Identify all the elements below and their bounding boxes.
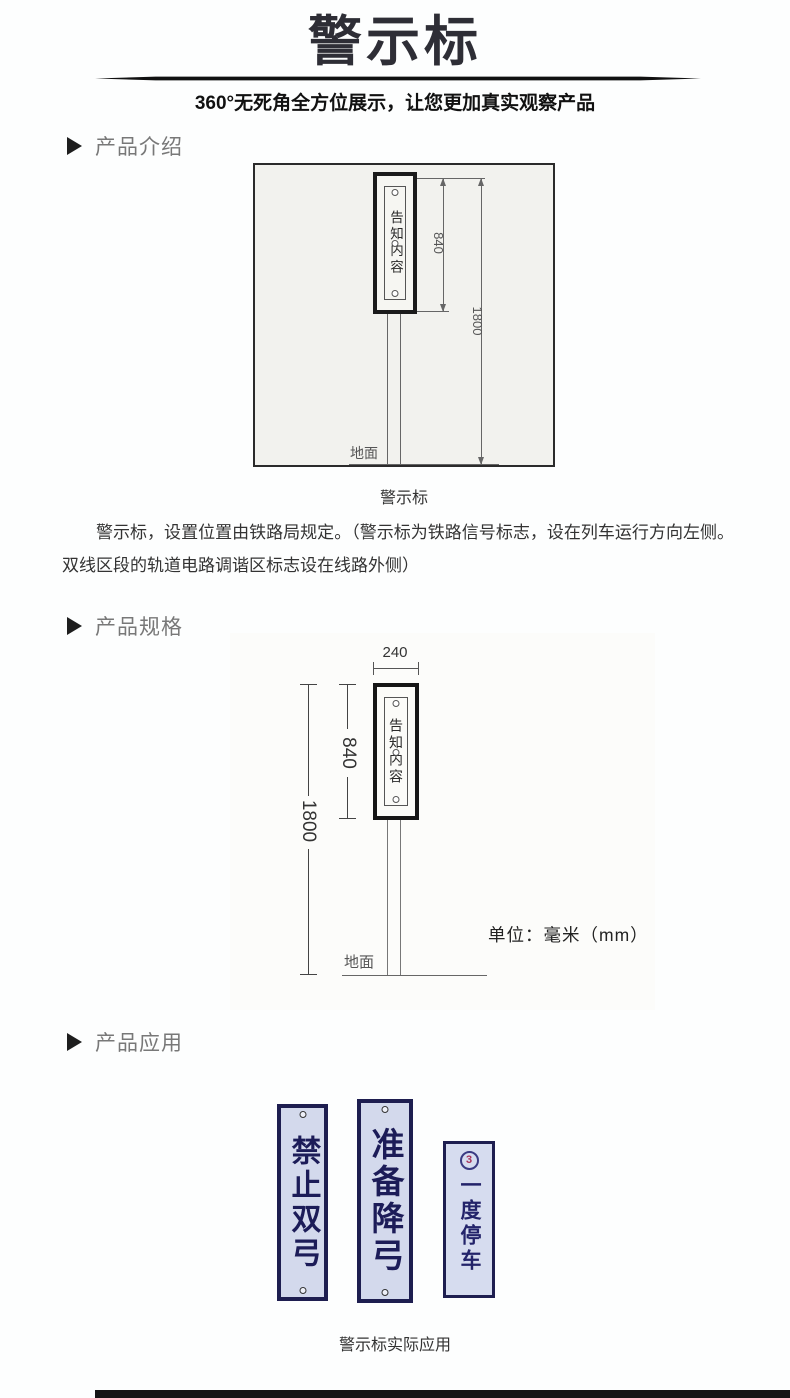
mount-hole	[393, 749, 400, 756]
dimension-label-1800: 1800	[469, 295, 485, 347]
ground-label: 地面	[350, 443, 378, 463]
diagram-caption: 警示标	[253, 484, 555, 508]
diagram-sign-plate: 告知内容	[373, 683, 419, 820]
triangle-icon	[67, 617, 82, 635]
intro-paragraph: 警示标，设置位置由铁路局规定。（警示标为铁路信号标志，设在列车运行方向左侧。双线…	[62, 516, 734, 582]
title-divider	[95, 76, 701, 81]
photo-sign-zhunbeijianggong: 准备降弓	[357, 1099, 413, 1303]
mount-hole	[299, 1111, 306, 1118]
arrow-down-icon	[478, 457, 484, 465]
diagram-pole	[387, 314, 401, 465]
photo-sign-text: 一度停车	[454, 1174, 484, 1274]
diagram-pole	[387, 820, 401, 975]
section-header-spec: 产品规格	[67, 611, 183, 641]
arrow-up-icon	[478, 178, 484, 186]
intro-diagram: 告知内容 地面 840 1800	[253, 163, 555, 467]
mount-hole	[392, 189, 399, 196]
arrow-up-icon	[440, 178, 446, 186]
photo-sign-jinzhishuanggong: 禁止双弓	[277, 1104, 328, 1301]
footer-bar	[95, 1390, 790, 1398]
circled-number-badge: 3	[460, 1151, 479, 1170]
dimension-tbar	[300, 974, 317, 975]
diagram-sign-inner-frame: 告知内容	[384, 697, 408, 806]
dimension-label-840: 840	[430, 220, 446, 266]
dimension-label-1800: 1800	[298, 795, 318, 847]
application-caption: 警示标实际应用	[0, 1331, 790, 1355]
page-subtitle: 360°无死角全方位展示，让您更加真实观察产品	[0, 88, 790, 115]
dimension-tbar	[339, 818, 356, 819]
mount-hole	[392, 290, 399, 297]
ground-line	[349, 464, 499, 465]
dimension-line-1800	[308, 684, 309, 796]
section-label: 产品应用	[95, 1027, 183, 1057]
mount-hole	[382, 1289, 389, 1296]
section-label: 产品介绍	[95, 131, 183, 161]
section-header-application: 产品应用	[67, 1027, 183, 1057]
section-label: 产品规格	[95, 611, 183, 641]
photo-sign-text: 准备降弓	[361, 1127, 409, 1275]
mount-hole	[393, 700, 400, 707]
triangle-icon	[67, 137, 82, 155]
dimension-line-840	[347, 684, 348, 729]
mount-hole	[382, 1106, 389, 1113]
mount-hole	[392, 240, 399, 247]
dimension-line-240	[373, 668, 419, 669]
photo-sign-yidutingche: 3 一度停车	[443, 1141, 495, 1298]
extension-line	[417, 178, 485, 179]
unit-note: 单位：毫米（mm）	[488, 922, 649, 947]
dimension-label-840: 840	[338, 729, 358, 777]
product-page: 警示标 360°无死角全方位展示，让您更加真实观察产品 产品介绍 告知内容 地面…	[0, 0, 790, 1398]
triangle-icon	[67, 1033, 82, 1051]
mount-hole	[393, 796, 400, 803]
section-header-intro: 产品介绍	[67, 131, 183, 161]
dimension-line-1800	[308, 849, 309, 974]
ground-line	[342, 975, 487, 976]
dimension-label-240: 240	[370, 644, 420, 661]
dimension-tick	[373, 662, 374, 675]
dimension-line-840	[347, 777, 348, 818]
dimension-tick	[418, 662, 419, 675]
diagram-sign-plate: 告知内容	[373, 172, 417, 314]
spec-diagram: 240 告知内容 地面 840 1800 单位：毫米（mm）	[230, 633, 655, 1010]
page-title: 警示标	[0, 12, 790, 72]
mount-hole	[299, 1287, 306, 1294]
photo-sign-text: 禁止双弓	[281, 1135, 325, 1271]
ground-label: 地面	[344, 951, 374, 972]
diagram-sign-inner-frame: 告知内容	[384, 186, 406, 300]
arrow-down-icon	[440, 304, 446, 312]
